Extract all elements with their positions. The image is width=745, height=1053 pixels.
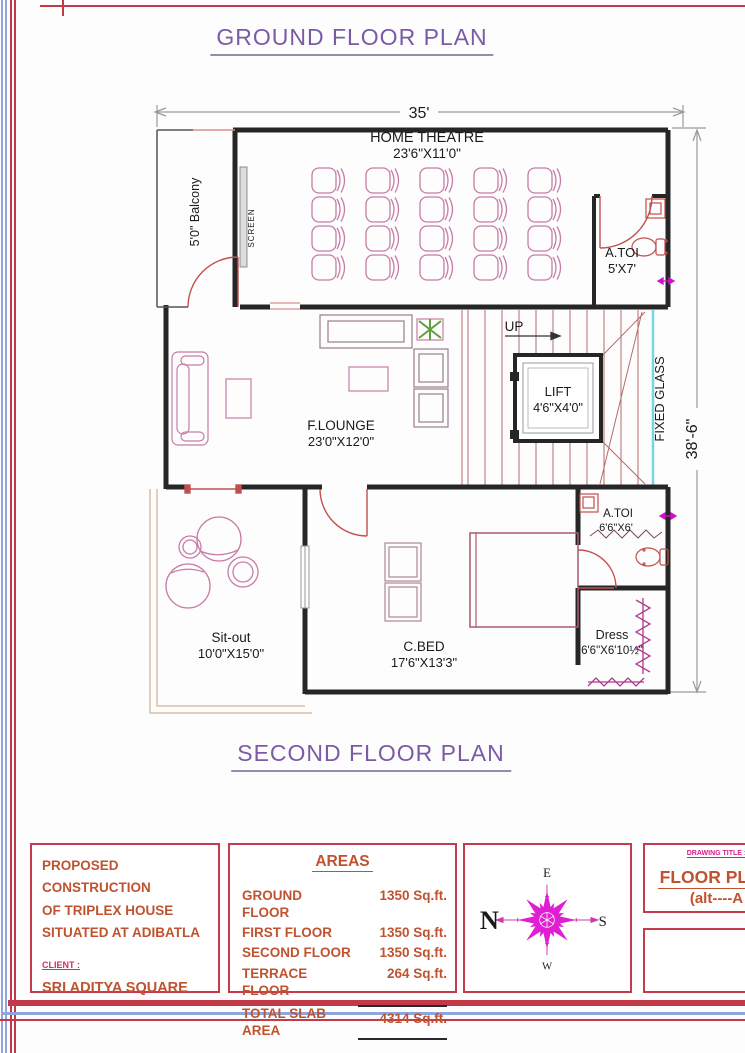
project-line-1: PROPOSED CONSTRUCTION bbox=[42, 855, 210, 900]
ground-floor-plan-title: GROUND FLOOR PLAN bbox=[210, 24, 493, 56]
project-line-3: SITUATED AT ADIBATLA bbox=[42, 922, 210, 944]
dress-size: 6'6"X6'10½" bbox=[581, 645, 643, 657]
home-theatre-size: 23'6"X11'0" bbox=[393, 146, 461, 161]
compass-w: W bbox=[542, 961, 553, 973]
balcony-label: 5'0" Balcony bbox=[188, 177, 202, 246]
cbed-furniture bbox=[301, 533, 578, 627]
areas-total-label: TOTAL SLAB AREA bbox=[242, 1005, 358, 1040]
areas-row-label: TERRACE FLOOR bbox=[242, 965, 354, 1000]
drawing-title-label: DRAWING TITLE : bbox=[645, 845, 745, 857]
client-label: CLIENT : bbox=[32, 944, 218, 970]
home-theatre-label: HOME THEATRE bbox=[370, 130, 484, 146]
lift-size: 4'6"X4'0" bbox=[533, 401, 583, 415]
areas-row-ground: GROUND FLOOR 1350 Sq.ft. bbox=[230, 885, 455, 923]
areas-row-total: TOTAL SLAB AREA 4314 Sq.ft. bbox=[230, 1004, 455, 1042]
theatre-seats bbox=[312, 168, 561, 280]
empty-title-box bbox=[643, 928, 745, 993]
atoi-top-size: 5'X7' bbox=[608, 261, 636, 276]
cbed-window bbox=[301, 546, 309, 608]
compass-e: E bbox=[543, 866, 551, 880]
areas-row-value: 1350 Sq.ft. bbox=[351, 924, 447, 941]
sheet-border-top-tick bbox=[62, 0, 64, 16]
atoi-top-label: A.TOI bbox=[605, 245, 639, 260]
dim-right-label: 38'-6" bbox=[684, 419, 701, 460]
screen-label: SCREEN bbox=[247, 208, 256, 247]
atoi-bottom-size: 6'6"X6' bbox=[599, 522, 633, 534]
floor-plan-drawing: 35' 38'-6" bbox=[0, 95, 745, 740]
dress-label: Dress bbox=[596, 628, 629, 642]
areas-row-label: GROUND FLOOR bbox=[242, 887, 352, 922]
areas-row-value: 1350 Sq.ft. bbox=[351, 944, 447, 961]
dress-hanger-symbols bbox=[588, 598, 650, 686]
screen-strip bbox=[240, 167, 247, 267]
lift-label: LIFT bbox=[545, 384, 572, 399]
project-info-box: PROPOSED CONSTRUCTION OF TRIPLEX HOUSE S… bbox=[30, 843, 220, 993]
cbed-label: C.BED bbox=[403, 639, 445, 654]
plant bbox=[417, 319, 443, 340]
compass-s: S bbox=[599, 914, 607, 930]
up-label: UP bbox=[505, 319, 524, 334]
areas-box: AREAS GROUND FLOOR 1350 Sq.ft. FIRST FLO… bbox=[228, 843, 457, 993]
dimension-right-38ft6 bbox=[670, 128, 706, 692]
sitout-terrace-outline bbox=[150, 489, 312, 713]
compass-rose: E N S W bbox=[465, 845, 630, 991]
areas-row-second: SECOND FLOOR 1350 Sq.ft. bbox=[230, 943, 455, 963]
lounge-size: 23'0"X12'0" bbox=[308, 434, 375, 449]
areas-row-first: FIRST FLOOR 1350 Sq.ft. bbox=[230, 923, 455, 943]
drawing-title-alt: (alt----A bbox=[645, 890, 745, 907]
areas-row-value: 264 Sq.ft. bbox=[354, 965, 447, 1000]
cbed-size: 17'6"X13'3" bbox=[391, 655, 458, 670]
areas-row-value: 1350 Sq.ft. bbox=[352, 887, 447, 922]
sitout-label: Sit-out bbox=[211, 630, 250, 645]
areas-title: AREAS bbox=[230, 853, 455, 871]
areas-total-value: 4314 Sq.ft. bbox=[358, 1005, 447, 1040]
compass-box: E N S W bbox=[463, 843, 632, 993]
lounge-label: F.LOUNGE bbox=[307, 418, 375, 433]
project-line-2: OF TRIPLEX HOUSE bbox=[42, 900, 210, 922]
sheet-border-top bbox=[40, 5, 745, 7]
sitout-furniture bbox=[166, 517, 258, 608]
sitout-size: 10'0"X15'0" bbox=[198, 646, 265, 661]
areas-row-label: SECOND FLOOR bbox=[242, 944, 351, 961]
drawing-sheet: GROUND FLOOR PLAN SECOND FLOOR PLAN 35' … bbox=[0, 0, 745, 1053]
second-floor-plan-title: SECOND FLOOR PLAN bbox=[231, 740, 511, 772]
atoi-bottom-label: A.TOI bbox=[603, 508, 633, 520]
dim-top-label: 35' bbox=[409, 105, 430, 122]
fixed-glass-label: FIXED GLASS bbox=[652, 356, 667, 442]
areas-row-label: FIRST FLOOR bbox=[242, 924, 332, 941]
drawing-title-box: DRAWING TITLE : FLOOR PLAN (alt----A bbox=[643, 843, 745, 913]
areas-row-terrace: TERRACE FLOOR 264 Sq.ft. bbox=[230, 963, 455, 1001]
compass-n: N bbox=[480, 906, 499, 935]
drawing-title: FLOOR PLAN bbox=[645, 867, 745, 888]
client-name: SRI ADITYA SQUARE bbox=[32, 970, 218, 996]
